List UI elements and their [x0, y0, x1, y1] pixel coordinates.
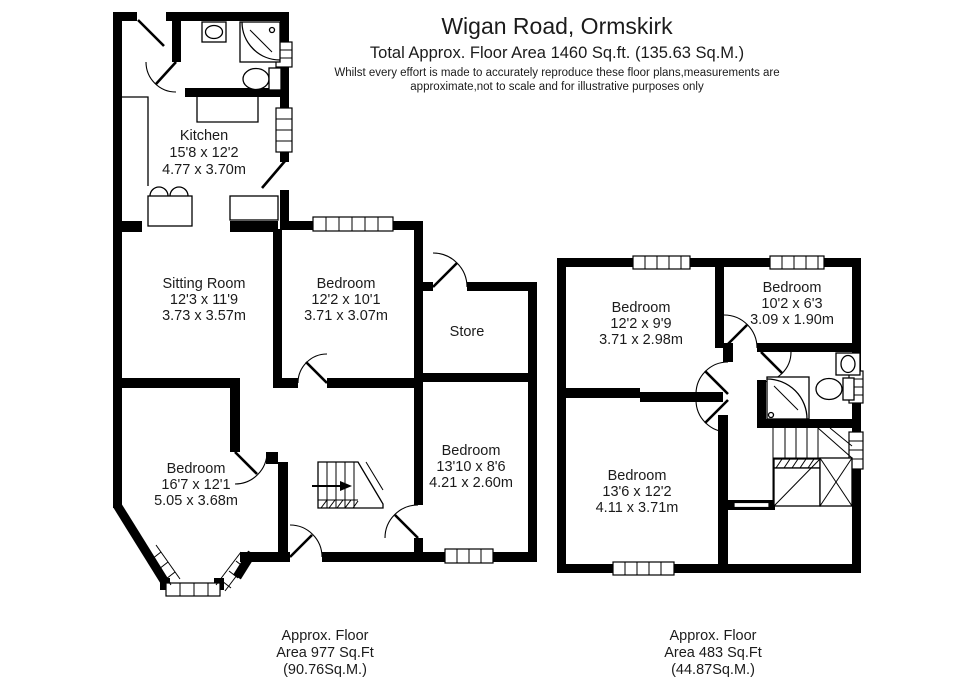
room-dims-metric: 4.77 x 3.70m [162, 162, 246, 178]
window [633, 256, 690, 269]
wall [273, 229, 282, 388]
room-dims-metric: 5.05 x 3.68m [154, 493, 238, 509]
room-dims-imperial: 16'7 x 12'1 [161, 477, 230, 493]
shower-icon [240, 22, 280, 62]
ground-floor-plan: Kitchen 15'8 x 12'2 4.77 x 3.70m Sitting… [113, 12, 537, 596]
toilet-icon [243, 68, 281, 90]
wall [113, 12, 122, 508]
gf-area-line-2: Area 977 Sq.Ft [276, 645, 374, 661]
wash-basin-icon [836, 353, 860, 375]
room-dims-imperial: 10'2 x 6'3 [761, 296, 822, 312]
window [276, 108, 292, 152]
gf-labels: Kitchen 15'8 x 12'2 4.77 x 3.70m Sitting… [154, 128, 513, 509]
wall [122, 378, 240, 388]
wall [414, 282, 433, 291]
wall [852, 402, 861, 433]
room-label-kitchen: Kitchen [180, 128, 228, 144]
ff-area-line-2: Area 483 Sq.Ft [664, 645, 762, 661]
wall [282, 378, 298, 388]
door [385, 505, 418, 538]
wall [322, 552, 445, 562]
door [235, 452, 267, 484]
room-dims-metric: 3.09 x 1.90m [750, 312, 834, 328]
wall [557, 258, 566, 573]
wall [392, 221, 423, 230]
floorplan-canvas: Wigan Road, Ormskirk Total Approx. Floor… [0, 0, 980, 692]
wall [715, 267, 724, 348]
wall [852, 468, 861, 573]
room-label-bedroom: Bedroom [612, 300, 671, 316]
kitchen-side-door-leaf [262, 161, 285, 188]
gf-area-line-3: (90.76Sq.M.) [283, 662, 367, 678]
wall [280, 152, 289, 162]
ff-area-line-3: (44.87Sq.M.) [671, 662, 755, 678]
wall [467, 282, 537, 291]
door [696, 362, 728, 394]
front-door-leaf [138, 20, 164, 46]
bay-wall [117, 505, 168, 587]
wall [230, 388, 240, 452]
ff-fixtures [767, 353, 860, 419]
first-floor-plan: Bedroom 12'2 x 9'9 3.71 x 2.98m Bedroom … [557, 256, 863, 575]
floorplan-page: Wigan Road, Ormskirk Total Approx. Floor… [0, 0, 980, 692]
window [613, 562, 674, 575]
room-dims-imperial: 12'3 x 11'9 [170, 292, 238, 308]
room-dims-imperial: 13'6 x 12'2 [602, 484, 671, 500]
gf-area-line-1: Approx. Floor [281, 628, 368, 644]
wall [674, 564, 860, 573]
wall [280, 190, 289, 230]
toilet-icon [816, 378, 854, 400]
store-door [433, 253, 467, 287]
door [298, 354, 327, 383]
wall [757, 419, 861, 428]
room-dims-metric: 3.73 x 3.57m [162, 308, 246, 324]
wall [327, 378, 423, 388]
door [146, 62, 176, 92]
wall [690, 258, 772, 267]
wall [414, 229, 423, 505]
wall [414, 373, 537, 382]
wall [166, 12, 289, 21]
wall [172, 12, 181, 62]
room-label-bedroom: Bedroom [167, 461, 226, 477]
room-dims-imperial: 15'8 x 12'2 [169, 145, 238, 161]
landing-cupboard [734, 503, 769, 508]
disclaimer-line-1: Whilst every effort is made to accuratel… [334, 67, 779, 79]
gf-fixtures [122, 22, 281, 226]
room-dims-imperial: 12'2 x 9'9 [610, 316, 671, 332]
wall [278, 462, 288, 562]
wall [493, 552, 537, 562]
wall [122, 221, 142, 232]
wall [557, 564, 615, 573]
gf-stairs-icon [312, 462, 383, 508]
wash-basin-icon [202, 22, 226, 42]
page-subtitle: Total Approx. Floor Area 1460 Sq.ft. (13… [370, 44, 744, 62]
room-dims-metric: 4.11 x 3.71m [596, 500, 679, 516]
room-dims-imperial: 12'2 x 10'1 [311, 292, 380, 308]
ff-stairs-icon [773, 428, 852, 506]
wall [230, 221, 278, 232]
room-label-bedroom: Bedroom [317, 276, 376, 292]
header-text: Wigan Road, Ormskirk Total Approx. Floor… [334, 13, 779, 93]
ff-area-line-1: Approx. Floor [669, 628, 756, 644]
room-dims-metric: 3.71 x 3.07m [304, 308, 388, 324]
wall [557, 258, 635, 267]
window [770, 256, 824, 269]
room-label-bedroom: Bedroom [608, 468, 667, 484]
room-dims-metric: 4.21 x 2.60m [429, 475, 513, 491]
door [290, 525, 322, 557]
wall [757, 343, 861, 352]
wall [566, 388, 640, 398]
page-title: Wigan Road, Ormskirk [441, 13, 673, 39]
wall [266, 452, 278, 464]
room-label-bedroom: Bedroom [442, 443, 501, 459]
room-dims-imperial: 13'10 x 8'6 [436, 459, 505, 475]
room-label-store: Store [450, 324, 485, 340]
window [313, 217, 393, 231]
room-label-sitting-room: Sitting Room [162, 276, 245, 292]
wall [718, 415, 728, 564]
room-label-bedroom: Bedroom [763, 280, 822, 296]
kitchen-sink-icon [148, 187, 192, 226]
room-dims-metric: 3.71 x 2.98m [599, 332, 683, 348]
shower-icon [767, 377, 809, 419]
wall [289, 221, 315, 230]
wall [280, 12, 289, 42]
wall [640, 392, 723, 402]
wall [528, 282, 537, 562]
area-labels: Approx. Floor Area 977 Sq.Ft (90.76Sq.M.… [276, 628, 762, 678]
disclaimer-line-2: approximate,not to scale and for illustr… [410, 81, 704, 93]
window [445, 549, 493, 563]
